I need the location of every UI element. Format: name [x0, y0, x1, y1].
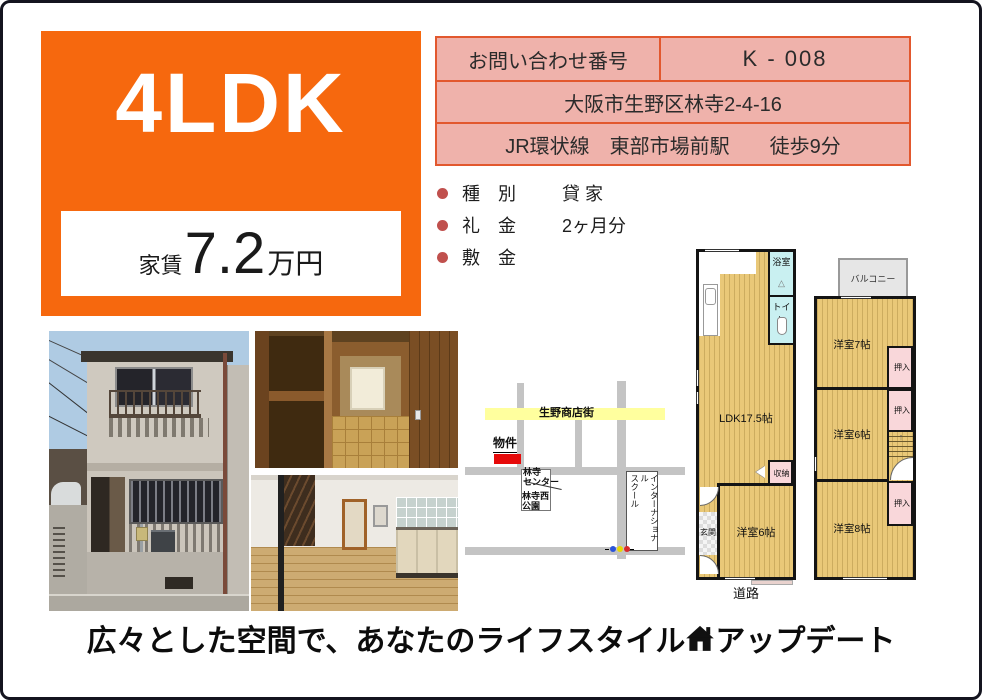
detail-list: 種 別 貸 家 礼 金 2ヶ月分 敷 金 — [437, 177, 697, 273]
inquiry-row: お問い合わせ番号 K - 008 — [437, 38, 909, 80]
vent-grille — [165, 577, 193, 588]
access-text: JR環状線 東部市場前駅 徒歩9分 — [505, 130, 841, 159]
balcony: バルコニー — [838, 258, 908, 299]
bathroom: 浴室 △ — [768, 252, 793, 297]
barred-window — [129, 479, 223, 524]
detail-value: 貸 家 — [562, 180, 603, 206]
stairs-up-arrow: ↑ — [889, 432, 913, 442]
neighbor-wall — [227, 365, 249, 597]
map-road — [575, 414, 582, 474]
door-swing — [890, 457, 913, 480]
school-label: インターナショナル スクール — [629, 474, 658, 550]
shopping-street-label: 生野商店街 — [539, 407, 594, 420]
closet-shelf — [269, 391, 324, 401]
rent-unit: 万円 — [267, 242, 323, 282]
bathtub-mark: △ — [770, 278, 793, 289]
tile-backsplash — [396, 497, 458, 527]
window — [814, 457, 817, 471]
bright-window — [350, 367, 385, 411]
parquet-floor — [332, 416, 409, 468]
room8-label: 洋室8帖 — [817, 521, 887, 536]
park-label: 林寺西 公園 — [522, 491, 549, 512]
ldk-label: LDK17.5帖 — [709, 410, 783, 426]
hallway-photo — [255, 331, 458, 468]
window — [705, 249, 739, 252]
detail-value: 2ヶ月分 — [562, 212, 626, 238]
balcony-door — [841, 296, 871, 299]
window — [843, 577, 887, 580]
kitchen-photo — [251, 475, 458, 611]
bullet-icon — [437, 188, 448, 199]
list-item: 礼 金 2ヶ月分 — [437, 209, 697, 241]
detail-label: 敷 金 — [462, 244, 558, 270]
closet: 押入 — [887, 346, 913, 389]
roof — [81, 351, 233, 362]
access-row: JR環状線 東部市場前駅 徒歩9分 — [437, 122, 909, 164]
property-marker — [494, 454, 521, 464]
rent-label: 家賃 — [139, 248, 183, 280]
detail-label: 礼 金 — [462, 212, 558, 238]
window — [696, 392, 699, 404]
address-row: 大阪市生野区林寺2-4-16 — [437, 80, 909, 122]
property-info-table: お問い合わせ番号 K - 008 大阪市生野区林寺2-4-16 JR環状線 東部… — [435, 36, 911, 166]
catchphrase: 広々とした空間で、あなたのライフスタイルアップデート — [3, 616, 979, 662]
kitchen-counter — [396, 527, 458, 577]
balcony-railing — [109, 390, 201, 418]
staircase — [284, 475, 315, 546]
catchphrase-pre: 広々とした空間で、あなたのライフスタイル — [87, 625, 686, 658]
entrance-label: 玄関 — [699, 527, 717, 538]
house-icon — [685, 624, 715, 662]
school-building: インターナショナル スクール — [626, 471, 658, 551]
floorplan-1f: 浴室 △ トイレ LDK17.5帖 収納 玄関 洋室6帖 — [696, 249, 796, 580]
closet-label: 押入 — [891, 362, 913, 373]
property-label: 物件 — [493, 437, 517, 453]
railing-shadow — [109, 418, 209, 438]
room7-label: 洋室7帖 — [817, 337, 887, 352]
closet: 押入 — [887, 481, 913, 526]
wood-panel-wall — [409, 331, 458, 468]
interior-wall — [717, 483, 720, 577]
back-window — [373, 505, 387, 527]
gas-meter — [136, 527, 148, 541]
floor-band — [87, 463, 225, 471]
door-direction-mark — [756, 466, 765, 478]
kitchen-sink — [705, 288, 716, 305]
exterior-photo — [49, 331, 249, 611]
mailbox — [151, 530, 175, 552]
room6-label-2f: 洋室6帖 — [817, 427, 887, 442]
closet-label: 押入 — [891, 498, 913, 509]
interior-wall — [817, 387, 889, 390]
list-item: 種 別 貸 家 — [437, 177, 697, 209]
rent-value: 7.2 — [185, 225, 266, 283]
inquiry-number: K - 008 — [661, 46, 909, 72]
interior-wall — [817, 479, 889, 482]
closet: 押入 — [887, 389, 913, 432]
staircase: ↑ — [887, 432, 913, 481]
bicycle — [53, 527, 65, 577]
closet-cavity — [269, 336, 324, 468]
closet-label: 押入 — [891, 405, 913, 416]
toilet-room: トイレ — [768, 297, 793, 345]
layout-type-label: 4LDK — [41, 61, 421, 145]
closet-frame — [324, 331, 332, 468]
wood-pillar — [255, 331, 269, 468]
floorplan-2f: 洋室7帖 押入 押入 ↑ 押入 洋室6帖 洋室8帖 — [814, 296, 916, 580]
storage-label: 収納 — [771, 468, 792, 479]
catchphrase-post: アップデート — [715, 625, 895, 658]
back-doorway — [342, 499, 367, 549]
hero-panel: 4LDK 家賃 7.2 万円 — [41, 31, 421, 316]
window — [696, 370, 699, 386]
road — [49, 594, 249, 611]
detail-label: 種 別 — [462, 180, 558, 206]
address-text: 大阪市生野区林寺2-4-16 — [564, 88, 782, 117]
rent-box: 家賃 7.2 万円 — [61, 211, 401, 296]
lower-wall — [87, 552, 225, 597]
outlet — [415, 410, 421, 420]
area-map: 生野商店街 物件 林寺 センター 林寺西 公園 インターナショナル スクール — [461, 381, 687, 581]
bathroom-label: 浴室 — [770, 255, 793, 268]
entrance-hall: 玄関 — [699, 512, 717, 555]
flyer-page: 4LDK 家賃 7.2 万円 お問い合わせ番号 K - 008 大阪市生野区林寺… — [0, 0, 982, 700]
bullet-icon — [437, 252, 448, 263]
road-label: 道路 — [696, 583, 796, 602]
bullet-icon — [437, 220, 448, 231]
list-item: 敷 金 — [437, 241, 697, 273]
toilet-bowl — [777, 317, 787, 335]
inquiry-label: お問い合わせ番号 — [437, 38, 661, 80]
balcony-label: バルコニー — [851, 272, 896, 285]
room6-label-1f: 洋室6帖 — [723, 524, 789, 540]
counter-toe-kick — [396, 573, 458, 578]
traffic-light-icon — [605, 546, 634, 552]
interior-wall — [717, 483, 793, 486]
